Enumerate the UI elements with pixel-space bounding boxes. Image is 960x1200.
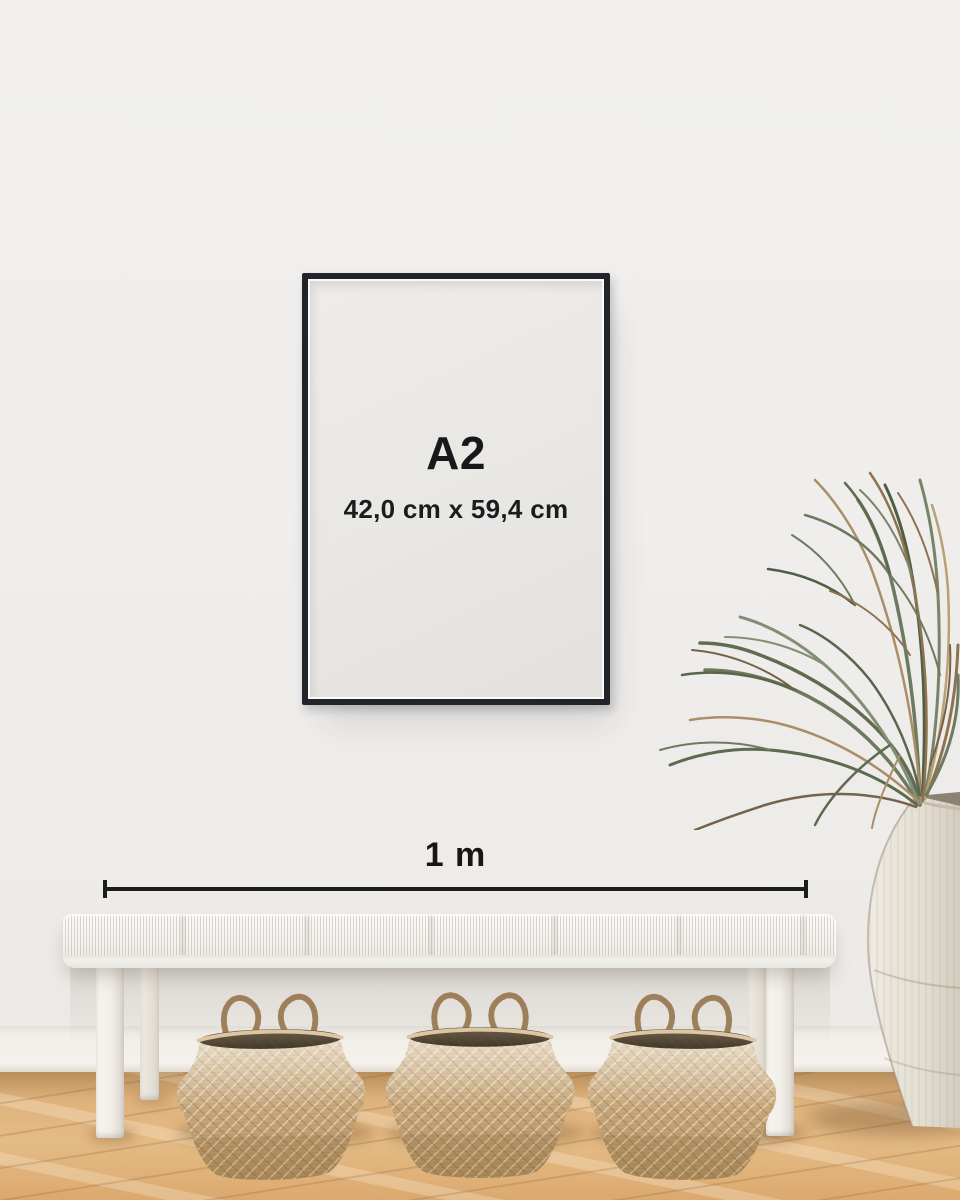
- ruler-line: [103, 887, 808, 891]
- measurement-label: 1 m: [103, 836, 808, 875]
- measurement-ruler: 1 m: [103, 836, 808, 892]
- plant-urn: [860, 790, 960, 1130]
- belly-basket-right: [583, 934, 783, 1143]
- belly-basket-middle: [382, 934, 578, 1140]
- poster-dimensions-label: 42,0 cm x 59,4 cm: [344, 494, 569, 525]
- size-guide-scene: A2 42,0 cm x 59,4 cm 1 m: [0, 0, 960, 1200]
- poster: A2 42,0 cm x 59,4 cm: [308, 279, 604, 699]
- bench-leg-front-left: [96, 960, 124, 1138]
- belly-basket-left: [170, 934, 370, 1144]
- poster-frame: A2 42,0 cm x 59,4 cm: [302, 273, 610, 705]
- bench-leg-rear-left: [140, 960, 159, 1100]
- palm-plant: [600, 325, 960, 830]
- ruler-tick-right: [804, 880, 808, 898]
- poster-size-label: A2: [426, 426, 486, 480]
